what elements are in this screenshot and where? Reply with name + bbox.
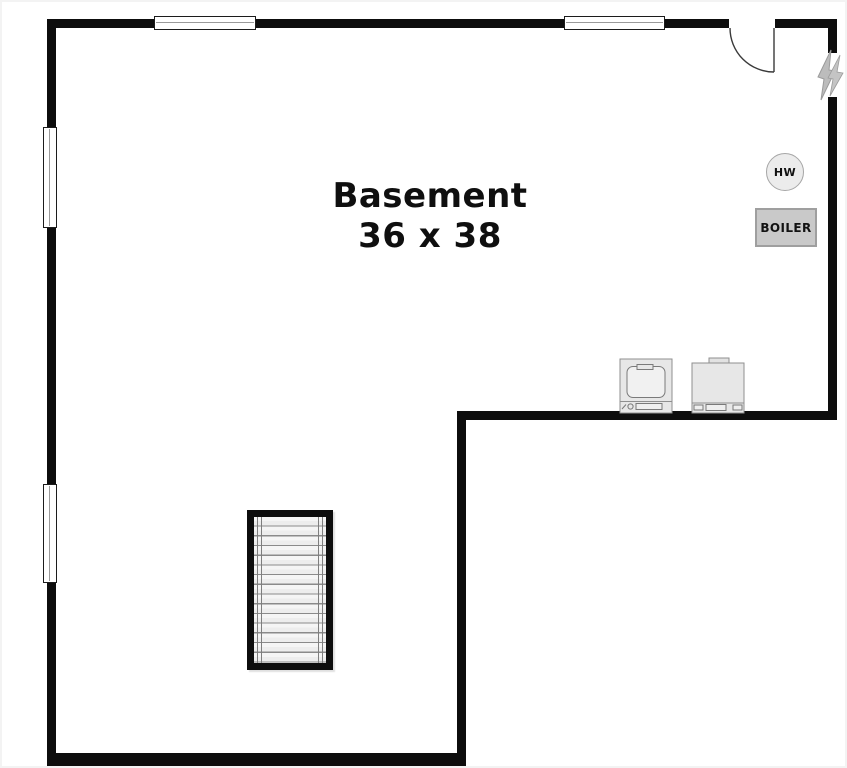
stair-rail-line — [318, 517, 319, 663]
room-label-block: Basement 36 x 38 — [280, 176, 580, 256]
wall-left-segment — [47, 582, 56, 753]
wall-top-segment — [48, 19, 155, 28]
wall-bottom — [47, 753, 466, 766]
laundry-appliances — [615, 354, 750, 416]
window-pane-line — [156, 22, 254, 23]
washer-icon — [620, 359, 672, 413]
wall-right-segment — [828, 97, 837, 420]
hot-water-heater-label: HW — [774, 166, 796, 179]
window-icon — [43, 127, 57, 228]
stair-rail-line — [322, 517, 323, 663]
window-pane-line — [49, 129, 50, 226]
window-pane-line — [49, 486, 50, 581]
lightning-bolt-icon — [810, 46, 847, 104]
window-pane-line — [566, 22, 663, 23]
stair-rail-line — [257, 517, 258, 663]
wall-left-segment — [47, 19, 56, 128]
door-swing-icon — [723, 25, 781, 77]
room-dimensions: 36 x 38 — [280, 216, 580, 256]
stair-rail-line — [261, 517, 262, 663]
hot-water-heater: HW — [766, 153, 804, 191]
wall-top-segment — [665, 19, 729, 28]
boiler: BOILER — [755, 208, 817, 247]
window-icon — [564, 16, 665, 30]
boiler-label: BOILER — [760, 221, 811, 235]
room-label: Basement — [280, 176, 580, 216]
wall-left-segment — [47, 227, 56, 485]
staircase-icon — [247, 510, 333, 670]
window-icon — [154, 16, 256, 30]
wall-top-segment — [255, 19, 567, 28]
window-icon — [43, 484, 57, 583]
floorplan-canvas: Basement 36 x 38 HW BOILER — [0, 0, 847, 768]
dryer-icon — [692, 358, 744, 413]
wall-interior-vertical — [457, 411, 466, 753]
